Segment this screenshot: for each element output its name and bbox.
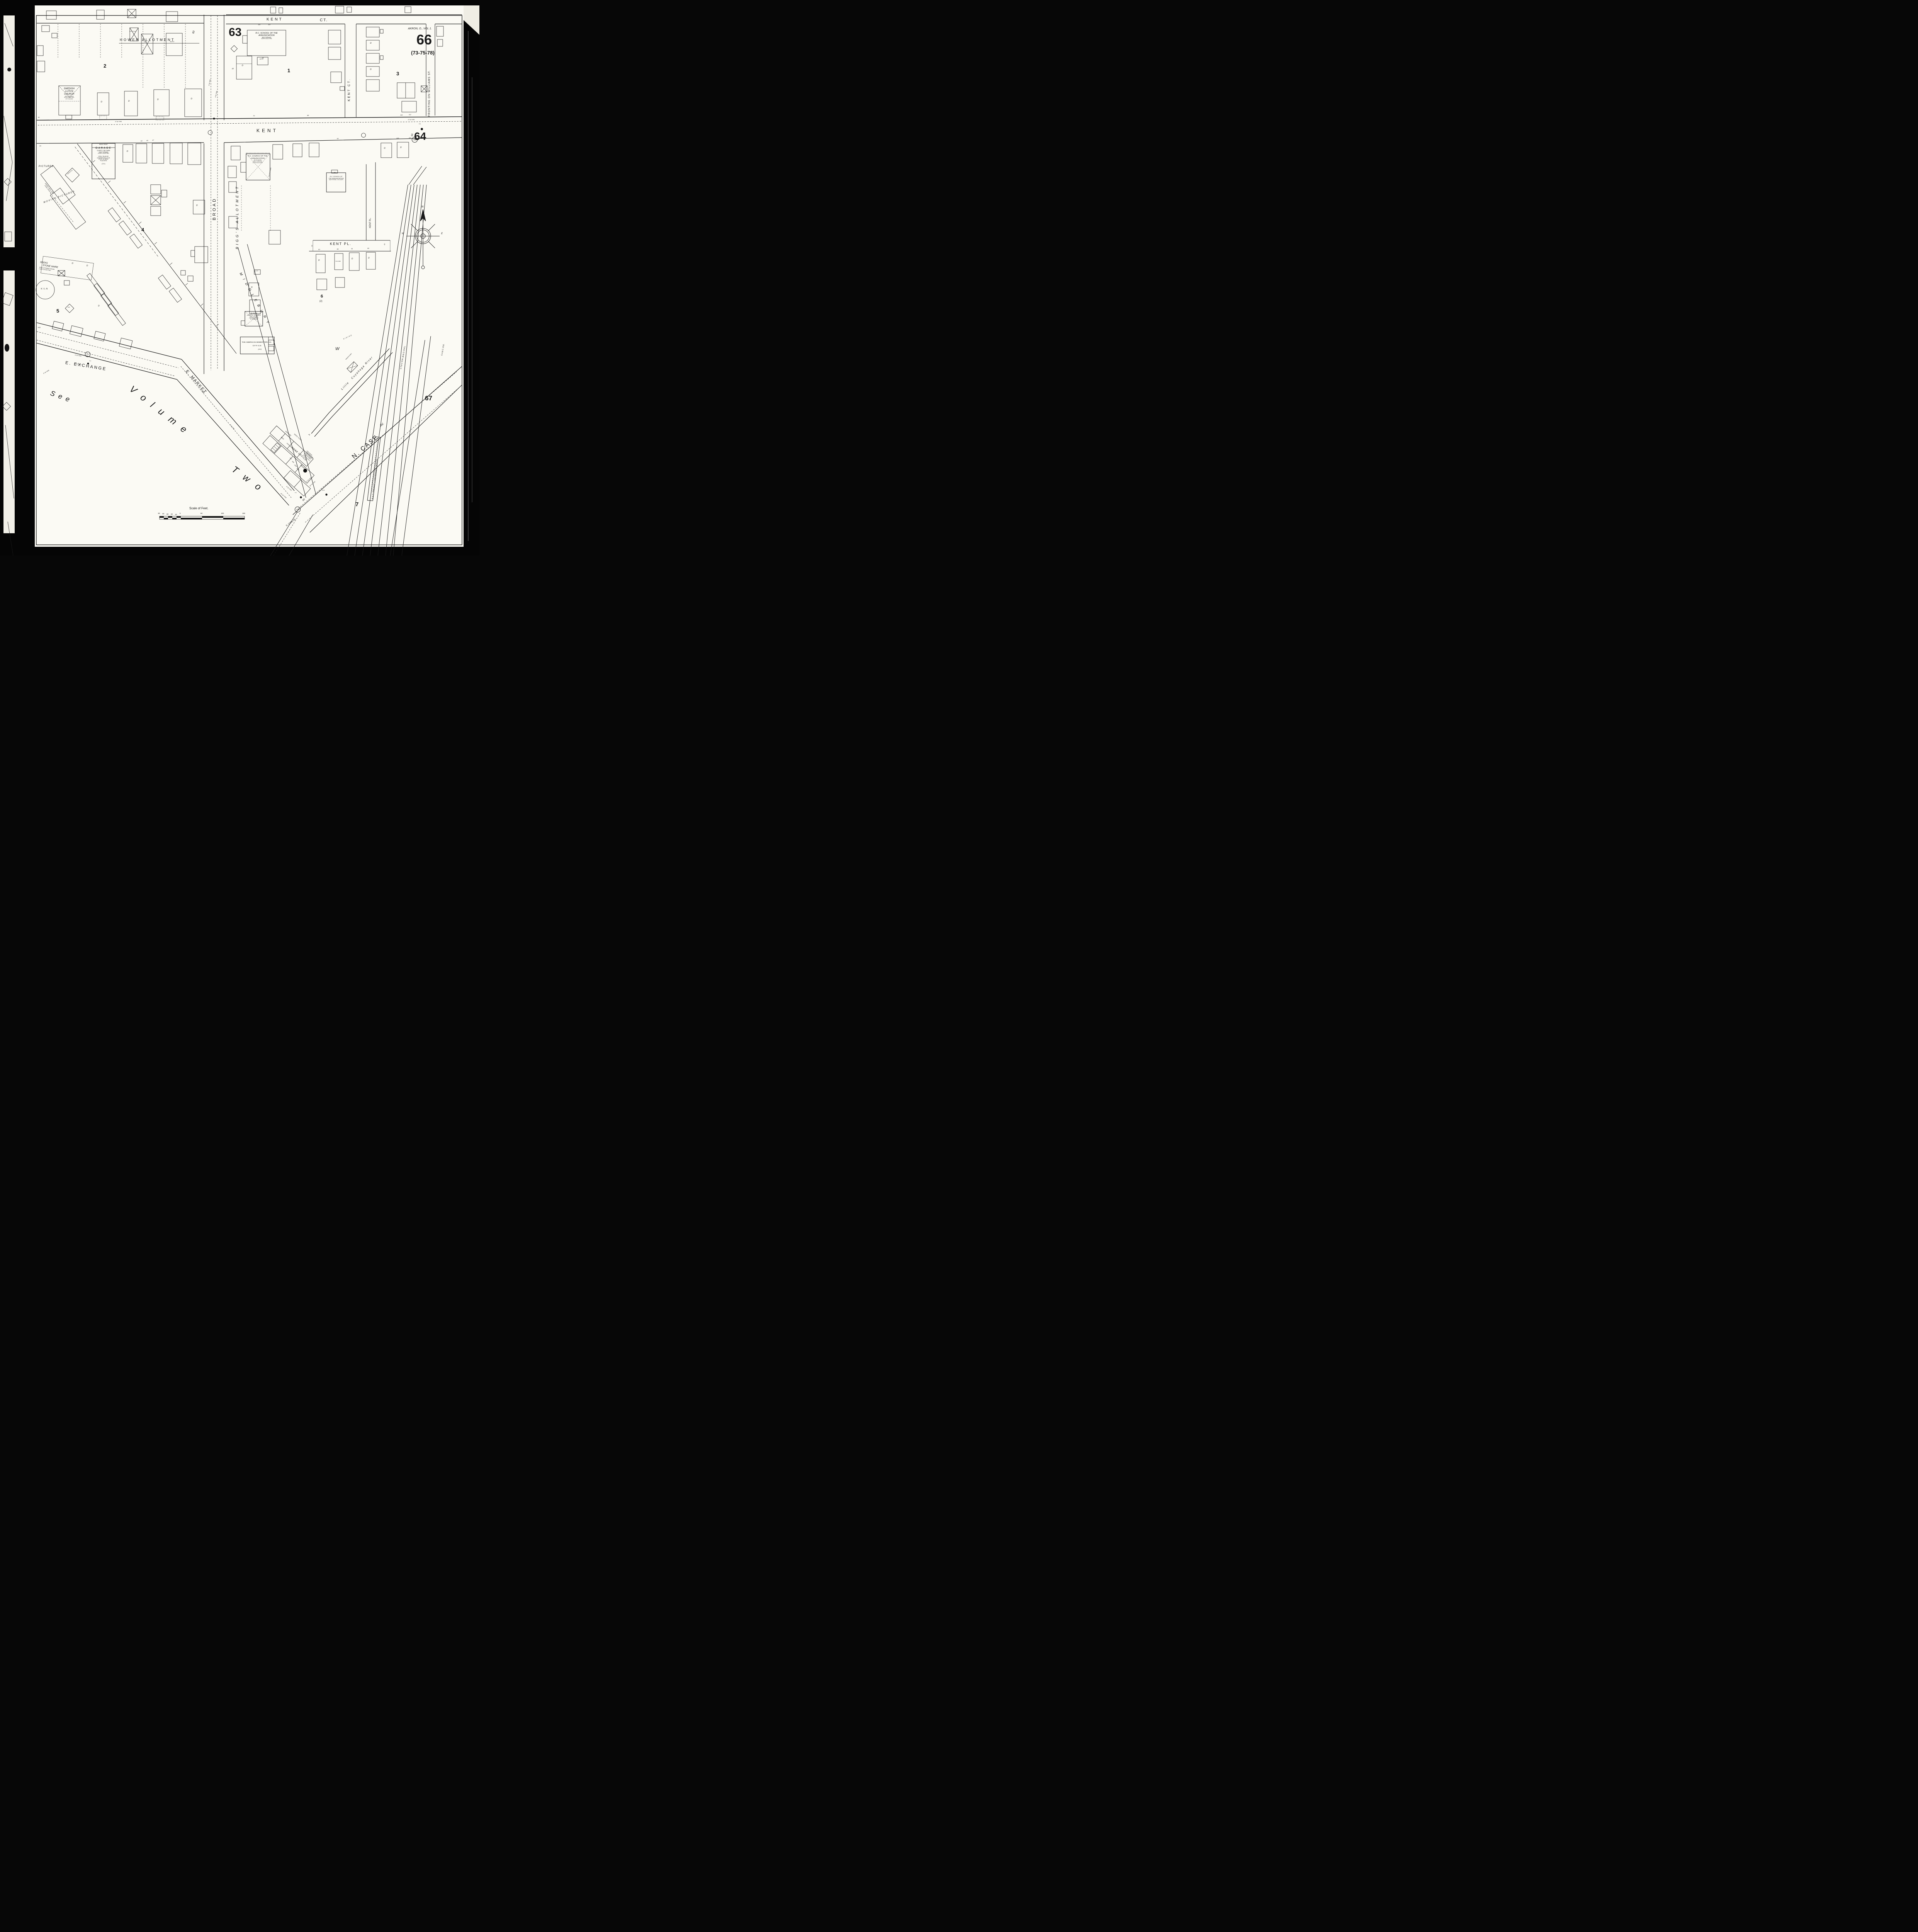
- dh-label: D.H.: [322, 490, 325, 492]
- garage-label: BRICK FRONT GARAGE CAPCY. 30 CARS HEAT: …: [93, 144, 114, 165]
- dwelling-mark: D: [352, 258, 353, 260]
- dwelling-mark: D: [196, 205, 198, 207]
- tile-label: TILE: [144, 42, 146, 43]
- volume-label: AKRON, O., VOL 1.: [408, 27, 432, 31]
- scale-tick: 40: [162, 513, 164, 515]
- house-number: 70: [253, 115, 255, 117]
- block-number-4: 4: [141, 227, 144, 233]
- scale-tick: 150: [242, 513, 245, 515]
- house-number: 95: [367, 248, 369, 249]
- test-hole-label: T.H.: [295, 492, 297, 493]
- sanborn-map-sheet-photo: AKRON, O., VOL 1. 66 (73-75-78) 63 64 67…: [0, 0, 479, 556]
- house-number: 30: [38, 117, 39, 118]
- dwelling-mark: D: [72, 263, 73, 265]
- house-number: 88: [307, 115, 309, 116]
- dwelling-mark: D: [242, 65, 243, 67]
- dwelling-mark: D: [157, 99, 159, 101]
- scale-tick: 10: [175, 514, 177, 516]
- adjacent-sheet-fragment-strip: [3, 0, 15, 556]
- house-number: 119: [268, 24, 270, 26]
- adjacent-sheet-67: 67: [425, 395, 432, 402]
- manhole-227: 227: [85, 352, 90, 357]
- ho-label: HO: [38, 327, 41, 329]
- block-number-6-sub: (2): [319, 300, 322, 303]
- house-number: 118: [258, 24, 260, 26]
- street-kent-pl-vertical: KENT PL.: [369, 218, 372, 228]
- house-number: 112: [409, 114, 411, 116]
- biggs-allotment-label: BIGG'S ALLOTMENT: [236, 185, 240, 249]
- off-label: OFF: [68, 307, 70, 308]
- street-williams-frontage: FRONTING ON WILLIAMS ST.: [428, 70, 431, 117]
- street-kent-pl: KENT PL.: [330, 242, 352, 246]
- lot-number-31: 31: [262, 57, 264, 59]
- house-number: 43: [141, 140, 142, 142]
- scale-tick: 30: [166, 514, 168, 515]
- auto-house-label-3: AUTO: [255, 270, 258, 272]
- sewer-pipe-office-number: (112): [258, 349, 262, 350]
- dwelling-mark: D: [251, 287, 253, 289]
- house-number: 91: [351, 248, 353, 250]
- slavon-lutheran-church-label: SLAVON LUTH'N. CHURCH HEAT: FURNACE LIGH…: [245, 313, 263, 320]
- rc-school-annunciation-label: R.C. SCHOOL OF THE ANNUNCIATION HEAT STO…: [326, 176, 347, 180]
- annunciation-church-label: R.C. CHURCH OF THE ANNUNCIATION 28' TO E…: [245, 155, 270, 163]
- manhole-188: 188: [412, 137, 418, 143]
- water-pipe-6in-label: 6" W. PIPE: [408, 119, 415, 121]
- dwelling-mark: D: [87, 265, 88, 267]
- block-number-1: 1: [287, 68, 290, 73]
- auto-house-label-1: AUTO: [170, 41, 174, 43]
- dwelling-mark: D: [318, 260, 320, 262]
- sheet-cross-reference: (73-75-78): [411, 50, 435, 56]
- house-number: 25: [39, 145, 41, 147]
- block-number-5: 5: [56, 308, 59, 314]
- house-number: 47: [152, 139, 154, 141]
- scale-tick: 20: [171, 514, 173, 515]
- house-number: 85: [337, 248, 338, 250]
- street-kent: KENT: [257, 128, 278, 133]
- street-kent-ct-top-suffix: CT.: [320, 19, 328, 23]
- dwelling-mark: D: [127, 151, 128, 153]
- street-kent-ct-top: KENT: [267, 18, 283, 22]
- house-number: 93: [337, 138, 338, 139]
- manhole-205: 205: [295, 507, 301, 512]
- street-kent-ct-vertical: KENT CT.: [348, 78, 351, 101]
- dwelling-mark: D: [191, 98, 192, 100]
- swedish-lutheran-church-label: SWEDISH LUTH'N CHURCH HEAT FURNACE LIGHT…: [58, 88, 80, 100]
- hower-allotment-label: HOWER ALLOTMENT: [120, 38, 175, 42]
- house-number: 45: [146, 140, 148, 141]
- sheet-number: 66: [416, 32, 432, 48]
- compass-north: N: [421, 206, 423, 209]
- house-number: 103: [396, 138, 399, 139]
- water-pipe-6in-label: 6" W. PIPE: [115, 121, 122, 123]
- adjacent-sheet-63: 63: [229, 26, 241, 39]
- compass-west: W: [402, 233, 404, 235]
- house-number: 107: [409, 137, 411, 139]
- dwelling-mark: D: [128, 100, 130, 102]
- rc-school-annunciation-north-label: R.C. SCHOOL OF THE ANNUNCIATION HEAT FUR…: [248, 32, 285, 40]
- sewer-pipe-office-name: THE AMERICAN SEWER PIPE CO.: [242, 342, 272, 344]
- dwelling-mark: D: [384, 148, 386, 150]
- sewer-pipe-office-word: OFFICE: [253, 345, 262, 347]
- scale-tick: 0: [180, 513, 181, 515]
- tile-lined-label: TILE LINED: [335, 261, 341, 262]
- street-middlebury-w: W: [335, 347, 339, 352]
- dwelling-mark: D: [368, 257, 370, 259]
- dwelling-mark: D: [370, 69, 372, 71]
- pictures-label: PICTURES: [39, 165, 53, 168]
- house-number: 83: [318, 249, 320, 250]
- block-number-2: 2: [104, 63, 106, 69]
- scale-tick: 50: [200, 513, 202, 515]
- test-hole-label: T.H.: [89, 361, 91, 362]
- compass-east: E: [441, 233, 443, 235]
- dwelling-mark: D: [370, 43, 372, 44]
- rc-school-eave-height: 25': [334, 172, 336, 174]
- block-number-6: 6: [321, 294, 323, 299]
- dwelling-mark: D: [400, 147, 402, 149]
- lot-number-32: 32: [232, 68, 234, 70]
- block-number-7: 7: [355, 502, 358, 508]
- scale-bar-title: Scale of Feet.: [189, 507, 208, 510]
- dwelling-mark: D: [98, 305, 100, 307]
- test-hole-label: T.H.: [419, 124, 421, 125]
- street-broad: BROAD: [212, 197, 217, 220]
- kiln-label: KILN: [41, 288, 48, 290]
- dwelling-mark: D: [101, 101, 102, 103]
- house-number: 110: [400, 114, 403, 116]
- block-number-3: 3: [396, 71, 399, 77]
- scale-tick: 50: [158, 513, 160, 515]
- scale-tick: 100: [221, 513, 224, 515]
- auto-tile-label: AUTO TILE: [129, 31, 136, 32]
